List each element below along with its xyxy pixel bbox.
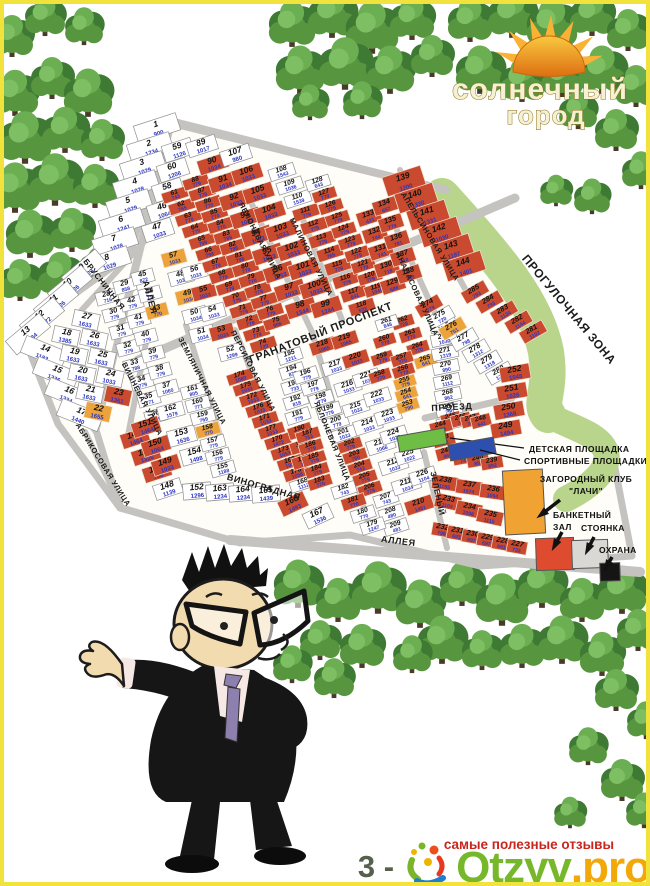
legend-label: БАНКЕТНЫЙ	[553, 509, 611, 520]
tree-icon	[595, 109, 639, 151]
tree-icon	[50, 208, 96, 252]
tree-icon	[554, 797, 587, 829]
screenshot-page: { "logo":{"line1":"солнечный","line2":"г…	[0, 0, 650, 886]
plot-number: 163	[212, 482, 227, 493]
plot-number: 152	[189, 481, 204, 492]
tree-icon	[6, 210, 57, 258]
character-ear	[171, 624, 189, 650]
tree-icon	[340, 624, 386, 668]
legend-label: СПОРТИВНЫЕ ПЛОЩАДКИ	[524, 456, 647, 466]
tree-icon	[617, 609, 650, 651]
character-eye-left	[220, 622, 228, 630]
tree-icon	[448, 0, 494, 42]
otzyv-logo-mark-icon	[404, 838, 452, 886]
legend-label: ЗАГОРОДНЫЙ КЛУБ	[540, 473, 632, 484]
plot-area: 1234	[214, 494, 228, 501]
settlement-map-scene: 1900212343102941028510296124171028810299…	[0, 0, 650, 886]
plot-area: 1234	[237, 495, 251, 502]
character-hand-open	[80, 641, 124, 686]
tree-icon	[540, 175, 573, 207]
brand-name-green: Otzyv	[456, 849, 571, 886]
character-shoe-left	[165, 855, 219, 873]
legend-label: СТОЯНКА	[581, 523, 625, 533]
character-leg-left	[180, 800, 220, 860]
tree-icon	[276, 46, 327, 94]
plot-area: 1439	[260, 496, 274, 503]
tree-icon	[25, 0, 67, 36]
tree-icon	[390, 0, 436, 40]
page-number-prefix: 3 -	[358, 851, 394, 886]
brand-logo[interactable]: 3 - Otzyv.pro	[358, 838, 650, 886]
tree-icon	[622, 151, 650, 189]
legend-label: ОХРАНА	[599, 545, 637, 555]
character-leg-right	[250, 798, 292, 850]
brand-name-yellow: .pro	[571, 849, 650, 886]
tree-icon	[65, 7, 105, 45]
legend-label: ДЕТСКАЯ ПЛОЩАДКА	[529, 444, 629, 454]
tree-icon	[574, 178, 611, 214]
character-tie	[225, 687, 240, 742]
character-eye-right	[270, 616, 278, 624]
legend-label: "ЛАЧИ"	[569, 486, 603, 496]
presenter-cartoon-character	[80, 544, 308, 873]
plot-area: 1296	[191, 493, 205, 500]
tree-icon	[0, 259, 43, 301]
logo-title-line2: город	[506, 100, 585, 130]
tree-icon	[569, 727, 609, 765]
tree-icon	[411, 35, 455, 77]
character-shoe-right	[254, 847, 306, 865]
legend-label: ЗАЛ	[553, 522, 572, 532]
